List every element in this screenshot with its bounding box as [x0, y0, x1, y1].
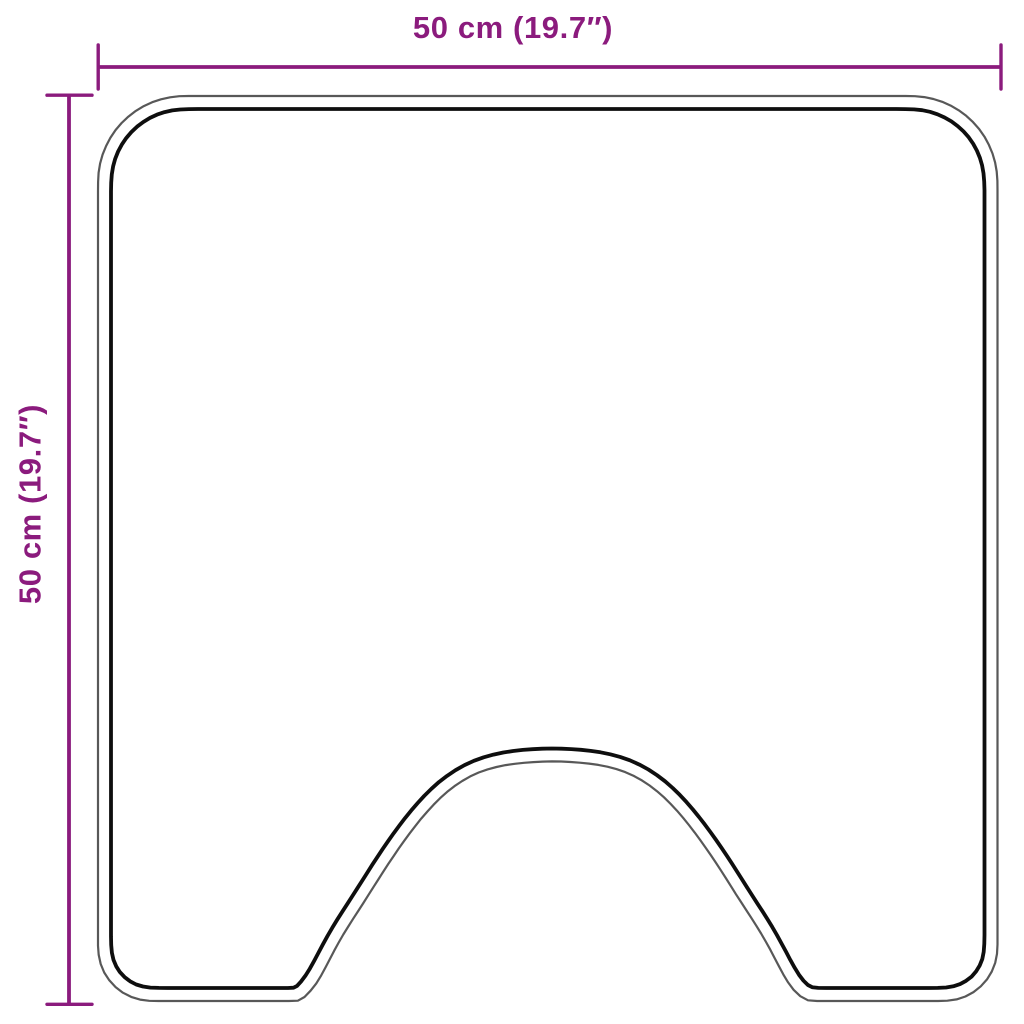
svg-text:50 cm (19.7″): 50 cm (19.7″) [13, 404, 48, 604]
svg-text:50 cm (19.7″): 50 cm (19.7″) [413, 10, 613, 45]
